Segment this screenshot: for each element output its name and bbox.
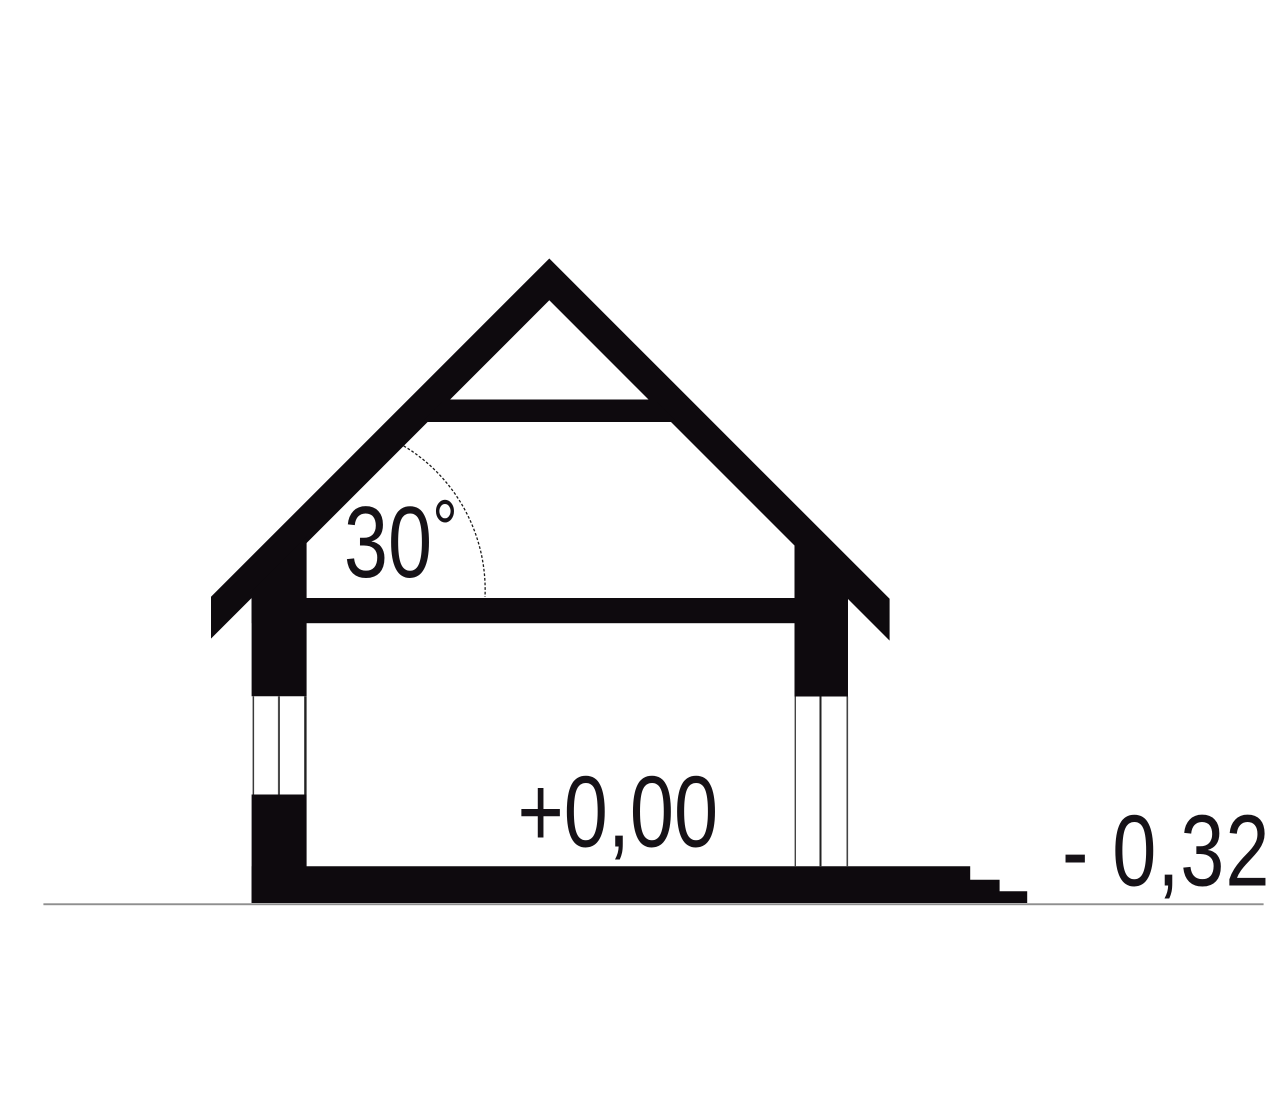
svg-text:- 0,32: - 0,32 (1062, 795, 1270, 907)
svg-text:+0,00: +0,00 (518, 756, 719, 868)
